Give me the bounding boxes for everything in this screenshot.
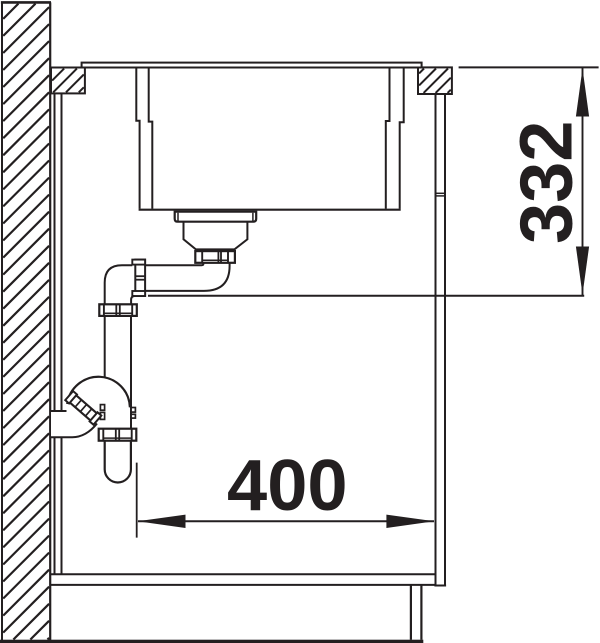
svg-text:400: 400 — [227, 445, 348, 526]
svg-text:332: 332 — [504, 121, 587, 245]
